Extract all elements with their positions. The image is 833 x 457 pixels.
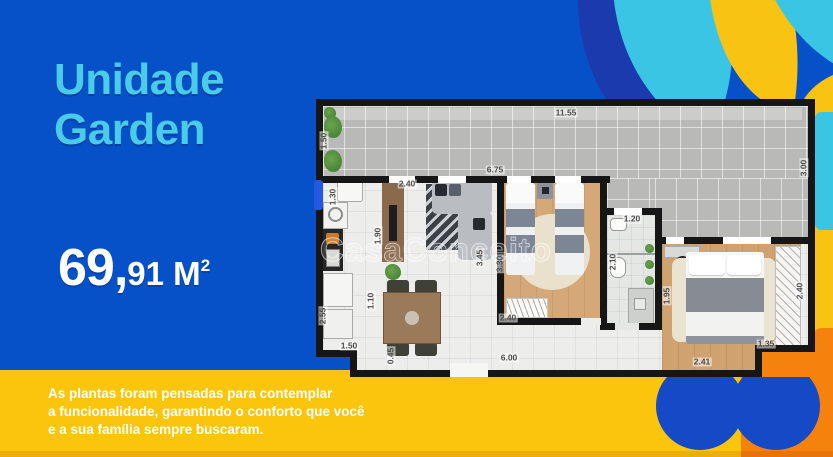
window xyxy=(507,176,531,183)
title-line-1: Unidade xyxy=(54,55,224,105)
pillow xyxy=(435,184,447,196)
plant-icon xyxy=(645,260,654,269)
page-title: Unidade Garden xyxy=(54,55,224,155)
plant-icon xyxy=(645,276,654,285)
area-value: 69,91 M2 xyxy=(58,238,210,298)
bedroom2-wardrobe xyxy=(775,246,801,346)
pillow xyxy=(449,184,461,196)
door-opening xyxy=(615,323,639,330)
window xyxy=(438,176,466,183)
description-line-2: a funcionalidade, garantindo o conforto … xyxy=(48,403,365,421)
plan-notch-bottom-left xyxy=(316,350,357,377)
door-opening xyxy=(450,363,488,377)
plant-icon xyxy=(645,244,654,253)
toilet xyxy=(610,257,626,278)
door-opening xyxy=(581,318,601,325)
entry-door-marker xyxy=(314,180,323,210)
wall xyxy=(655,208,662,330)
window xyxy=(723,237,771,244)
shower-drain xyxy=(634,298,646,310)
lamp xyxy=(542,187,549,194)
dimension-strip xyxy=(329,108,802,120)
description-paragraph: As plantas foram pensadas para contempla… xyxy=(48,385,365,439)
laundry-tank xyxy=(337,180,363,202)
area-major: 69, xyxy=(58,239,127,297)
description-line-3: e a sua família sempre buscaram. xyxy=(48,421,365,439)
window xyxy=(555,176,581,183)
window xyxy=(389,176,415,183)
fridge xyxy=(323,273,353,307)
area-minor: 91 xyxy=(127,255,164,292)
title-line-2: Garden xyxy=(54,105,224,155)
watermark: CasaConceito xyxy=(320,231,580,269)
window xyxy=(614,208,642,215)
bedroom1-wardrobe xyxy=(506,298,548,318)
terrace-floor xyxy=(655,178,808,237)
chair xyxy=(415,342,437,356)
terrace-floor xyxy=(607,178,662,208)
chair xyxy=(387,342,409,356)
pillow xyxy=(689,255,725,275)
pillow xyxy=(473,218,485,230)
bedroom2-floor xyxy=(662,345,755,370)
description-line-1: As plantas foram pensadas para contempla… xyxy=(48,385,365,403)
area-sup: 2 xyxy=(201,256,210,275)
wall xyxy=(600,176,607,330)
cabinet xyxy=(323,309,353,339)
window xyxy=(666,237,684,244)
marketing-slide: Unidade Garden 69,91 M2 As plantas foram… xyxy=(0,0,833,457)
table-centerpiece xyxy=(405,311,419,325)
washer-door-icon xyxy=(328,207,343,222)
shower-divider xyxy=(607,253,655,255)
plan-notch-bottom-right xyxy=(755,345,815,377)
area-unit: M xyxy=(164,255,201,292)
plant-icon xyxy=(324,150,342,172)
plant-icon xyxy=(324,116,342,138)
bathroom-sink xyxy=(610,218,627,231)
pillow xyxy=(727,255,761,275)
bottom-shade xyxy=(0,451,833,457)
